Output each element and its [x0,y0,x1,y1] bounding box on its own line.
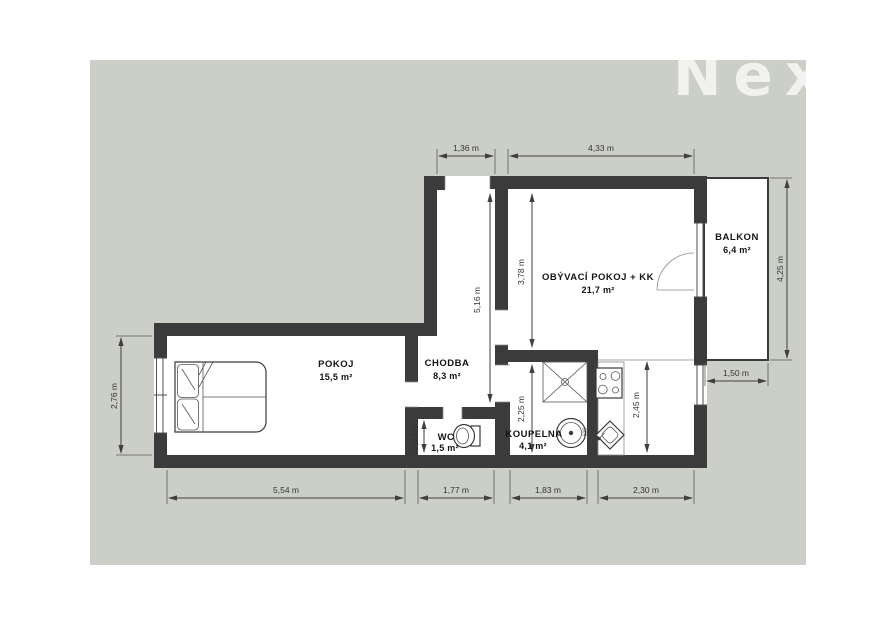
bed-icon [175,362,266,432]
dim-living-width: 4,33 m [588,143,614,153]
dim-entry-width: 1,36 m [453,143,479,153]
room-label-wc: WC [438,432,455,443]
dim-koupelna-width: 1,83 m [535,485,561,495]
room-area-pokoj: 15,5 m² [319,372,352,382]
balcony-outline [704,178,768,360]
dim-kitchen-height: 2,45 m [631,392,641,418]
floorplan-drawing: 610 [90,60,806,565]
dim-wc-height: 0,87 m [410,424,420,450]
dim-living-height: 3,78 m [516,259,526,285]
room-area-balkon: 6,4 m² [723,245,751,255]
room-area-obyvaci: 21,7 m² [581,285,614,295]
dim-pokoj-width: 5,54 m [273,485,299,495]
dim-koupelna-height: 2,25 m [516,396,526,422]
room-label-pokoj: POKOJ [318,359,354,370]
dim-balcony-height: 4,25 m [775,256,785,282]
dim-pokoj-height: 2,76 m [109,383,119,409]
dim-kitchen-width: 2,30 m [633,485,659,495]
room-area-koupelna: 4,1 m² [519,441,547,451]
dim-balcony-width: 1,50 m [723,368,749,378]
dim-chodba-width: 1,77 m [443,485,469,495]
room-label-chodba: CHODBA [425,358,470,369]
room-label-balkon: BALKON [715,232,759,243]
floorplan-page: Nex [0,0,894,625]
stove-icon [596,368,622,398]
room-label-obyvaci: OBÝVACÍ POKOJ + KK [542,271,654,283]
washer-size-label: 610 [583,428,589,437]
room-label-koupelna: KOUPELNA [505,429,562,440]
dim-corridor-height: 5,16 m [472,287,482,313]
floorplan-canvas: Nex [90,60,806,565]
room-area-wc: 1,5 m² [431,443,459,453]
room-area-chodba: 8,3 m² [433,371,461,381]
